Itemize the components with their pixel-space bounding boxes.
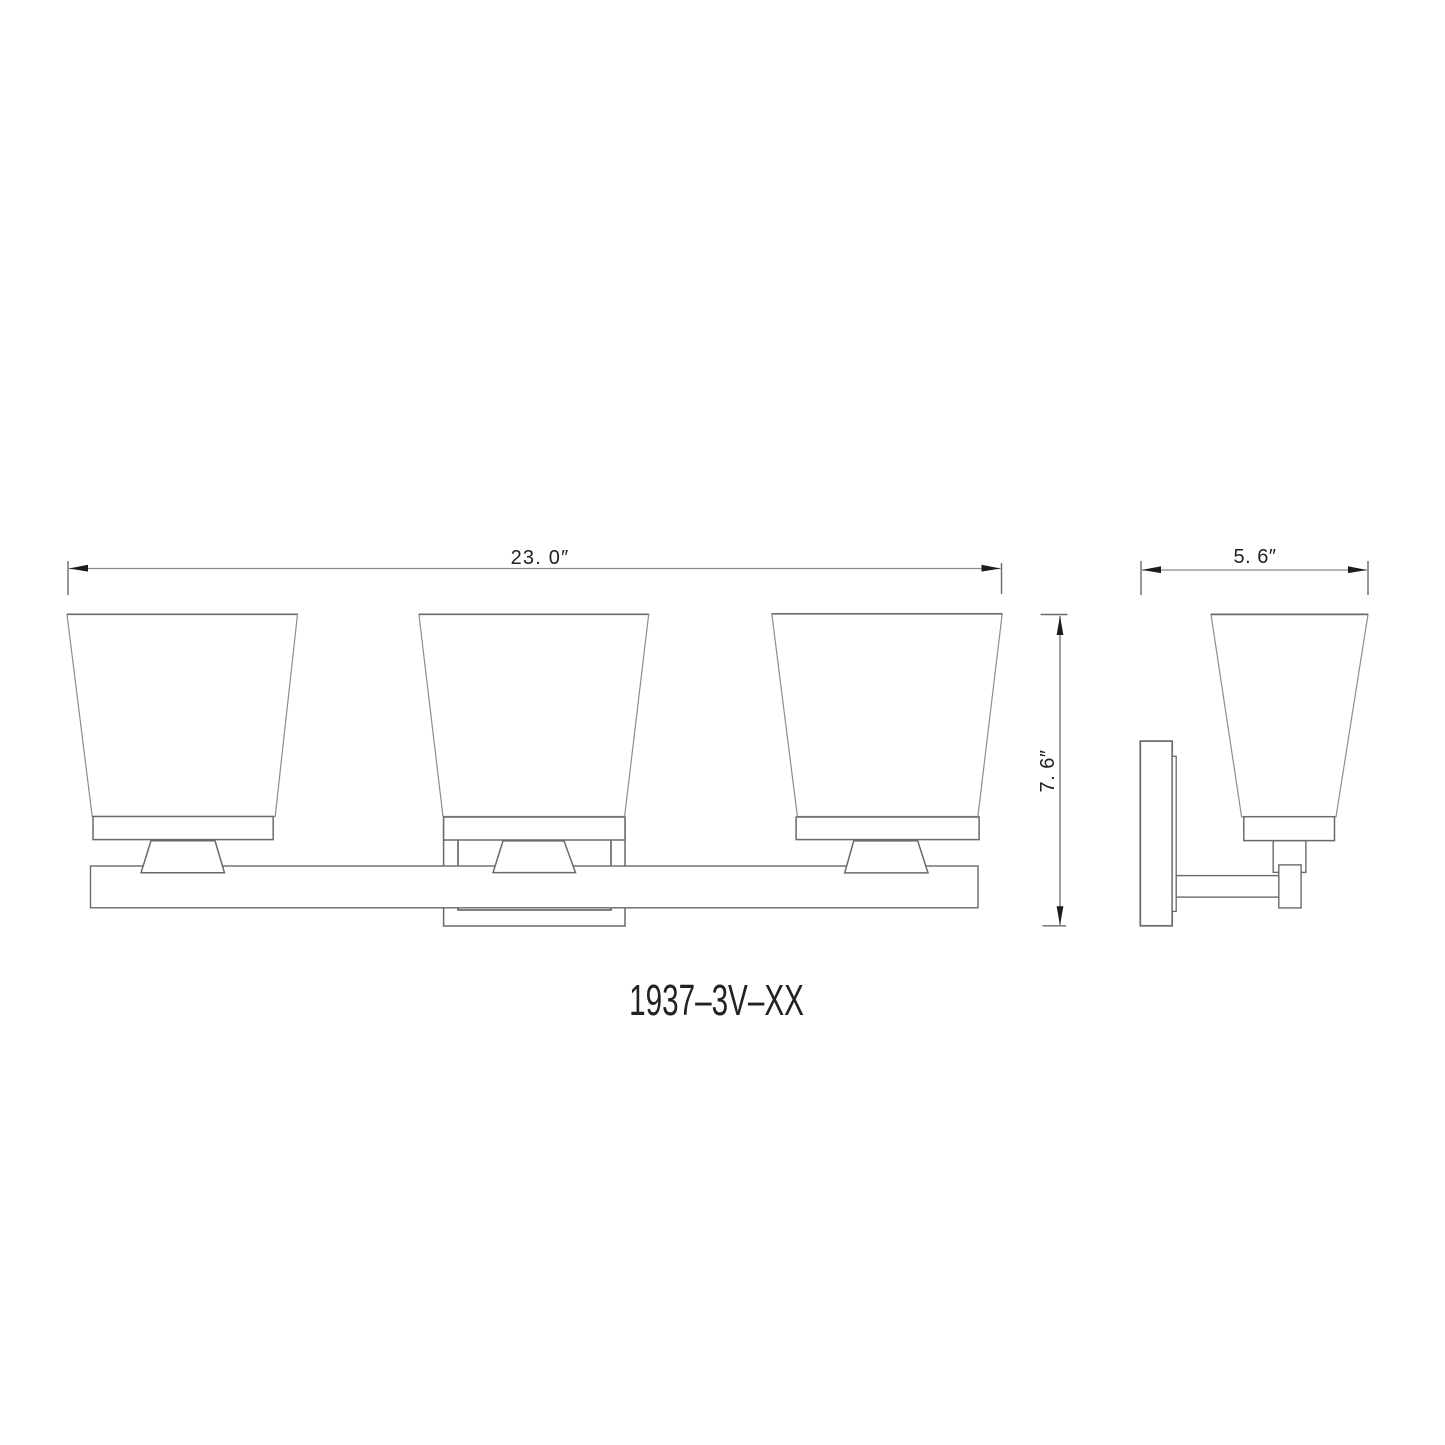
svg-text:5. 6″: 5. 6″ <box>1234 546 1277 568</box>
svg-text:23. 0″: 23. 0″ <box>511 547 570 569</box>
svg-text:1937–3V–XX: 1937–3V–XX <box>629 975 804 1024</box>
svg-text:7. 6″: 7. 6″ <box>1037 750 1059 793</box>
